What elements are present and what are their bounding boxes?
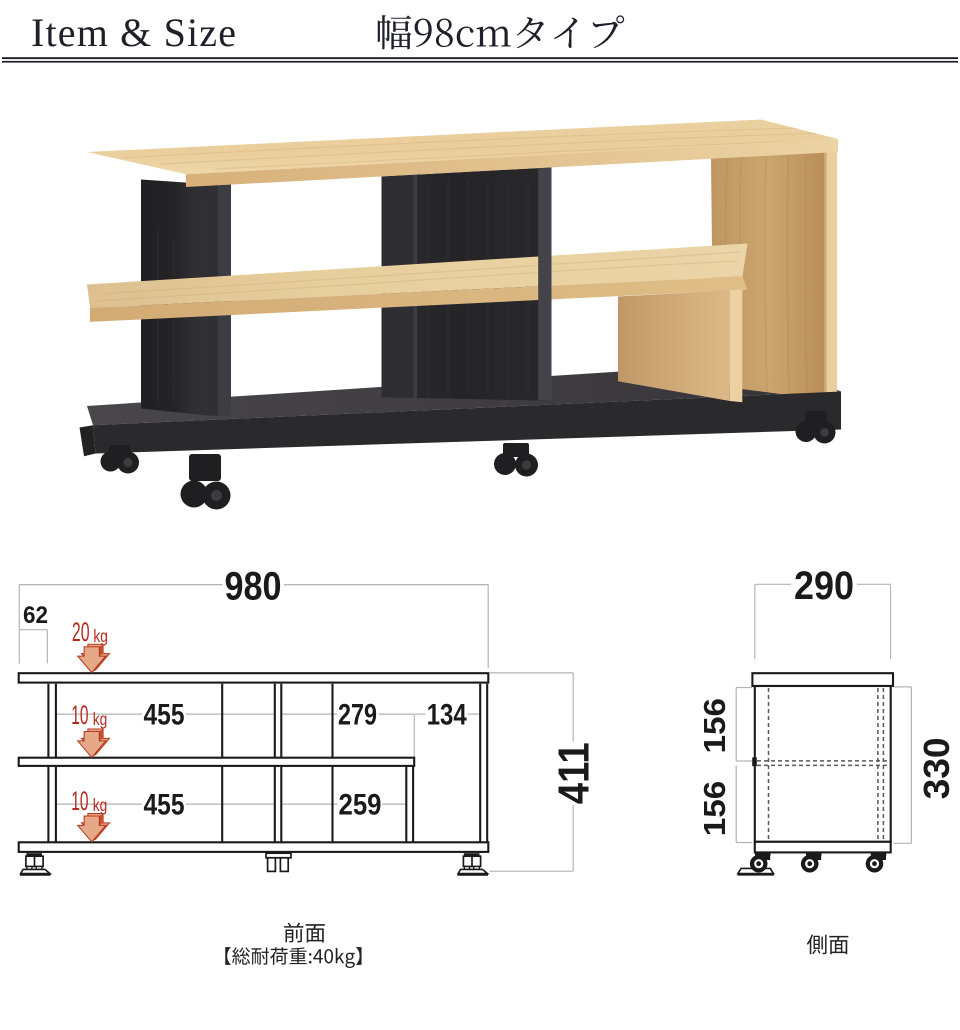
svg-text:980: 980 bbox=[225, 565, 282, 609]
svg-text:411: 411 bbox=[550, 742, 599, 804]
svg-text:Item & Size: Item & Size bbox=[31, 10, 236, 55]
svg-text:kg: kg bbox=[93, 795, 108, 815]
svg-text:259: 259 bbox=[339, 789, 382, 822]
svg-text:290: 290 bbox=[794, 564, 854, 608]
svg-text:330: 330 bbox=[916, 737, 957, 799]
svg-text:62: 62 bbox=[23, 602, 48, 629]
svg-text:10: 10 bbox=[71, 700, 88, 730]
svg-text:kg: kg bbox=[93, 709, 108, 729]
svg-text:455: 455 bbox=[144, 699, 185, 732]
svg-text:455: 455 bbox=[144, 789, 185, 822]
svg-text:20: 20 bbox=[72, 617, 90, 647]
svg-text:10: 10 bbox=[71, 786, 88, 816]
svg-text:156: 156 bbox=[697, 781, 732, 837]
svg-text:kg: kg bbox=[93, 626, 108, 646]
svg-text:279: 279 bbox=[338, 699, 377, 732]
svg-text:156: 156 bbox=[697, 698, 732, 754]
svg-text:134: 134 bbox=[427, 699, 467, 732]
